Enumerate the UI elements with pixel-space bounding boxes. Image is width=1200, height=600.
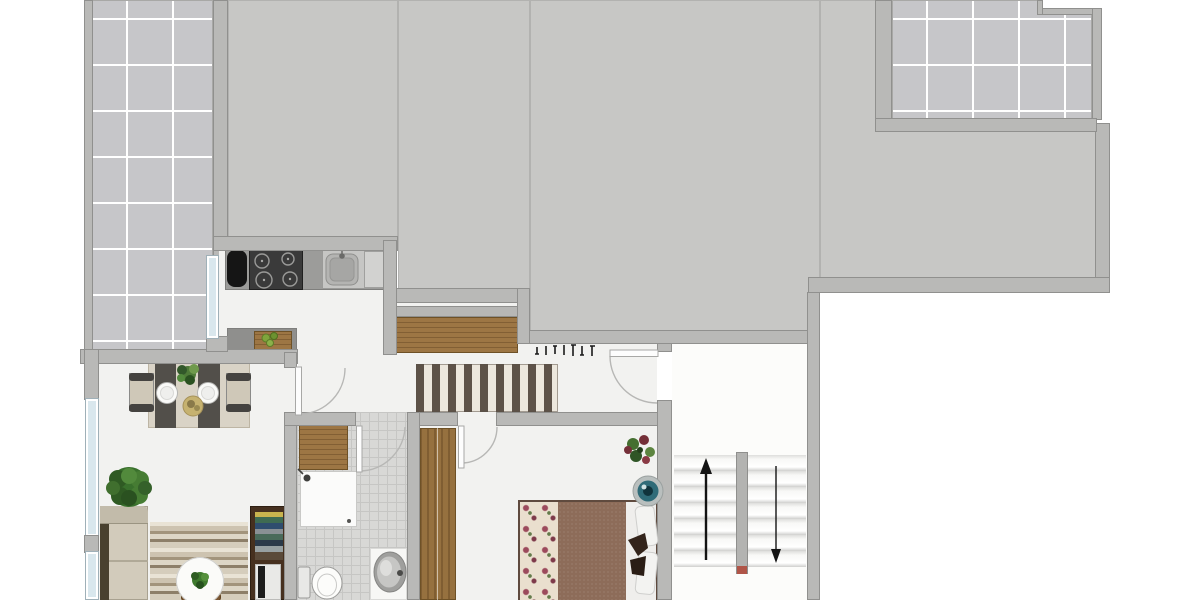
down-arrow-icon — [771, 466, 781, 563]
island-fruit — [262, 333, 278, 347]
serving-bowl — [183, 396, 203, 416]
floor-plan — [0, 0, 1200, 600]
living-room-door — [296, 367, 346, 415]
bed-pillows — [628, 505, 658, 595]
coffee-table-plant — [191, 572, 209, 589]
shower-head-icon — [298, 469, 311, 482]
teal-decorative-bowl — [633, 476, 663, 506]
cooktop-burner-icons — [255, 253, 297, 288]
washbasin — [374, 552, 406, 592]
up-arrow-icon — [700, 458, 712, 560]
table-centerpiece-plant — [177, 364, 199, 385]
bedroom-door — [459, 426, 498, 468]
potted-plant — [106, 467, 152, 507]
coat-hook-icons — [535, 345, 595, 356]
detail-overlay — [0, 0, 1200, 600]
bathroom-door — [357, 426, 406, 472]
bedroom-plant — [624, 435, 655, 464]
sink — [326, 251, 358, 285]
toilet — [298, 567, 342, 599]
shower-drain — [347, 519, 351, 523]
entrance-door — [610, 350, 658, 403]
